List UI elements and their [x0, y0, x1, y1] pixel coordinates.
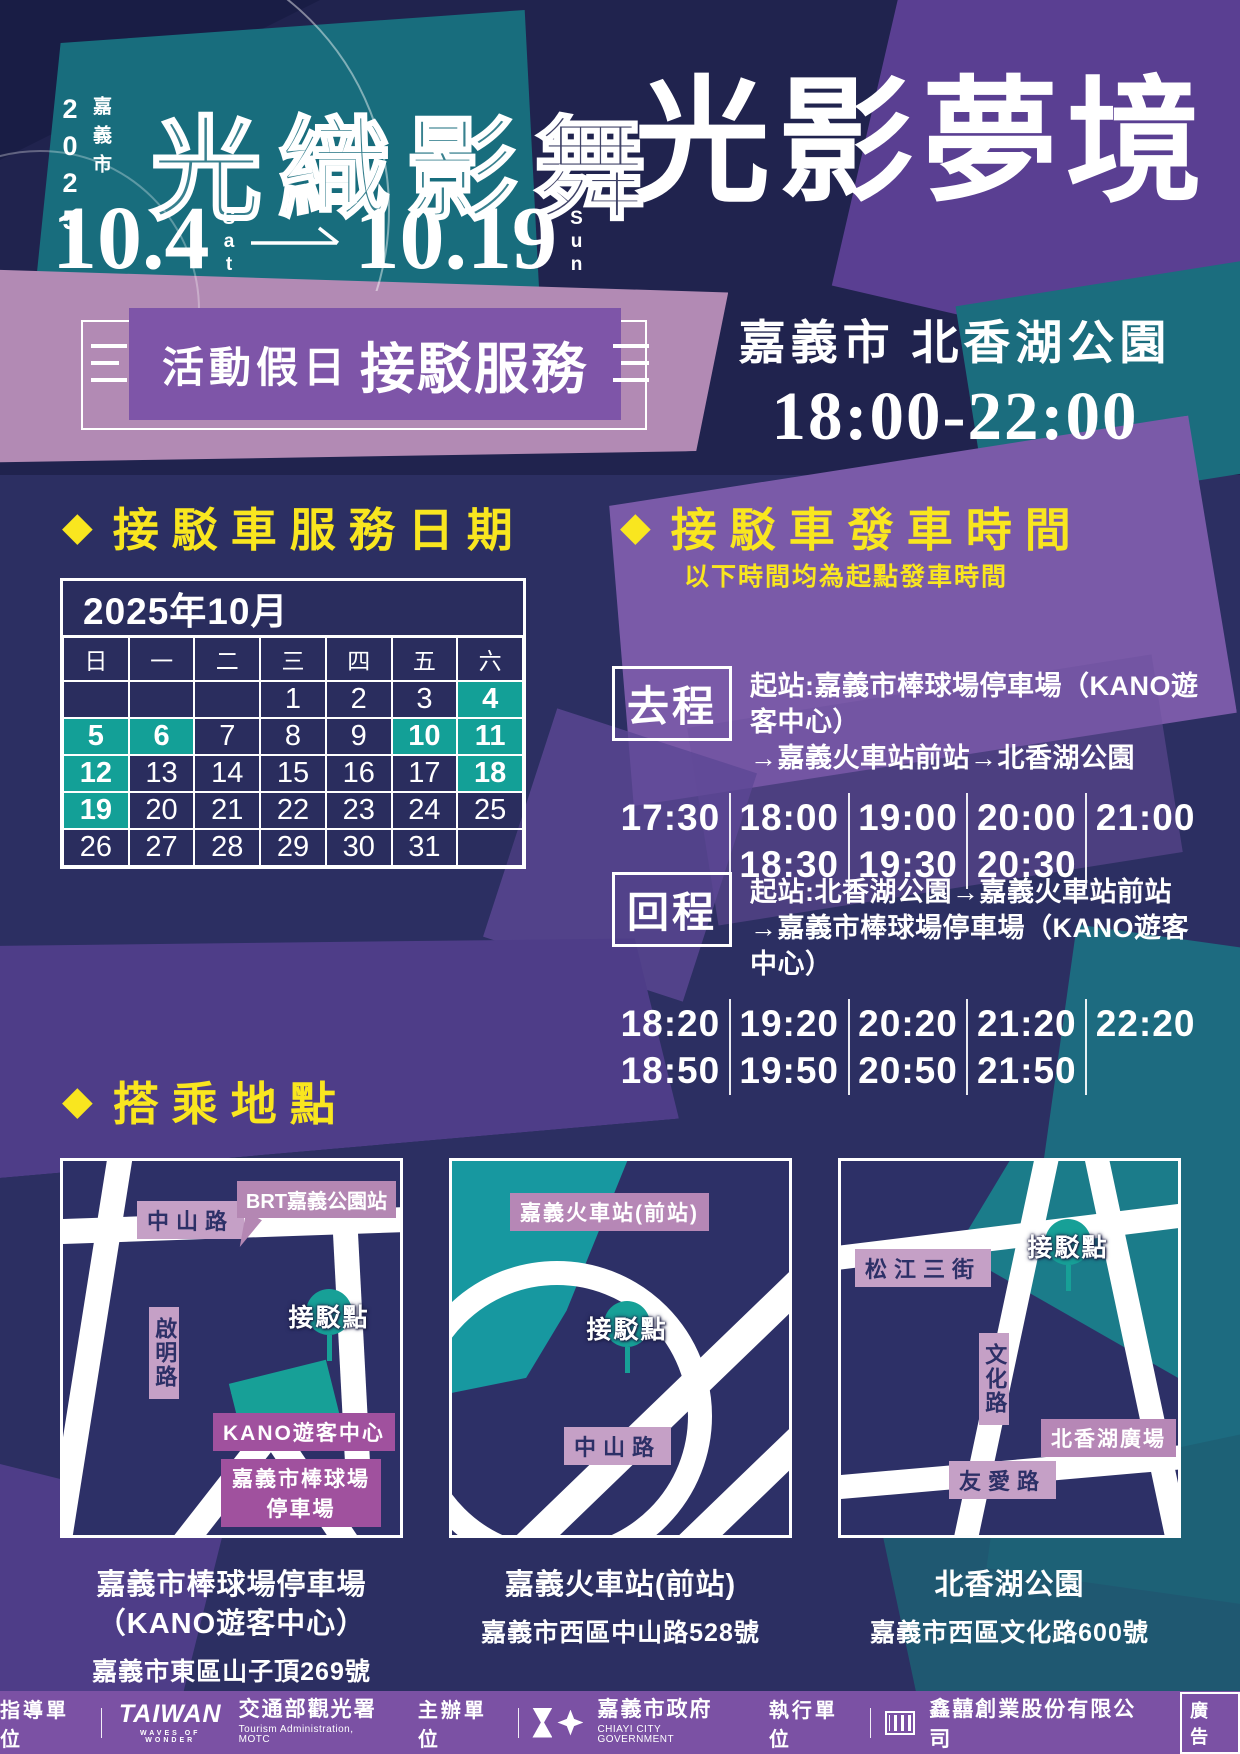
pin-stem	[327, 1335, 332, 1361]
time-slot: 17:30	[621, 795, 721, 840]
time-slot: 18:50	[621, 1048, 721, 1093]
outbound-trip: 去程 起站:嘉義市棒球場停車場（KANO遊客中心） →嘉義火車站前站→北香湖公園…	[612, 666, 1214, 889]
map-card-stadium: 中山路 BRT嘉義公園站 啟明路 接駁點 KANO遊客中心 嘉義市棒球場 停車場…	[60, 1158, 403, 1688]
banner-label-bold: 接駁服務	[360, 324, 588, 404]
maps-row: 中山路 BRT嘉義公園站 啟明路 接駁點 KANO遊客中心 嘉義市棒球場 停車場…	[60, 1158, 1182, 1688]
calendar-day: 31	[392, 829, 458, 866]
shuttle-pin: 接駁點	[1041, 1219, 1095, 1291]
footer-divider	[870, 1708, 871, 1738]
map-station: 嘉義火車站(前站) 接駁點 中山路	[449, 1158, 792, 1538]
calendar-empty-cell	[63, 681, 129, 718]
road-label-youai: 友愛路	[949, 1461, 1056, 1499]
calendar-day: 25	[457, 792, 523, 829]
chiayi-government-org: 嘉義市政府 CHIAYI CITY GOVERNMENT	[597, 1699, 730, 1745]
pin-label: 接駁點	[1027, 1228, 1108, 1264]
footer-bar: 指導單位 TAIWAN WAVES OF WONDER 交通部觀光署 Touri…	[0, 1691, 1240, 1754]
time-column: 22:20	[1085, 999, 1204, 1095]
time-slot: 19:50	[739, 1048, 839, 1093]
road-label-zhongshan: 中山路	[137, 1201, 244, 1239]
date-start-day: Sat	[220, 208, 239, 281]
calendar-weekday: 六	[457, 637, 523, 681]
taiwan-tagline: WAVES OF WONDER	[116, 1730, 225, 1744]
diamond-icon: ◆	[62, 507, 93, 547]
ad-badge: 廣告	[1180, 1692, 1240, 1754]
calendar-day: 18	[457, 755, 523, 792]
map-stadium: 中山路 BRT嘉義公園站 啟明路 接駁點 KANO遊客中心 嘉義市棒球場 停車場	[60, 1158, 403, 1538]
locations-section-heading: ◆ 搭乘地點	[62, 1068, 349, 1134]
road-label-zhongshan: 中山路	[564, 1427, 671, 1465]
road	[60, 1158, 134, 1538]
time-slot: 20:20	[858, 1001, 958, 1046]
map-park: 松江三街 接駁點 文化路 北香湖廣場 友愛路	[838, 1158, 1181, 1538]
calendar-day: 29	[260, 829, 326, 866]
calendar-day: 10	[392, 718, 458, 755]
diamond-icon: ◆	[62, 1081, 93, 1121]
map-caption-station: 嘉義火車站(前站) 嘉義市西區中山路528號	[449, 1566, 792, 1649]
calendar-day: 14	[194, 755, 260, 792]
calendar-day: 19	[63, 792, 129, 829]
taiwan-wordmark: TAIWAN	[116, 1702, 225, 1727]
kano-center-label: KANO遊客中心	[213, 1413, 395, 1451]
caption-address: 嘉義市東區山子頂269號	[60, 1652, 403, 1688]
return-route: 起站:北香湖公園→嘉義火車站前站 →嘉義市棒球場停車場（KANO遊客中心）	[750, 872, 1214, 983]
calendar-weekday: 日	[63, 637, 129, 681]
calendar-weekday: 三	[260, 637, 326, 681]
calendar-day: 20	[129, 792, 195, 829]
station-label: 嘉義火車站(前站)	[510, 1193, 709, 1231]
time-column: 20:2020:50	[848, 999, 967, 1095]
return-route-line1: 起站:北香湖公園→嘉義火車站前站	[750, 874, 1214, 910]
calendar-month-title: 2025年10月	[63, 581, 523, 637]
times-heading-text: 接駁車發車時間	[671, 494, 1084, 560]
shuttle-banner: 活動假日 接駁服務	[75, 300, 665, 436]
time-slot: 18:00	[739, 795, 839, 840]
banner-label-regular: 活動假日	[162, 334, 350, 395]
venue-location: 嘉義市 北香湖公園	[690, 304, 1220, 373]
time-column: 19:2019:50	[729, 999, 848, 1095]
time-slot: 21:50	[977, 1048, 1077, 1093]
taiwan-logo: TAIWAN WAVES OF WONDER	[116, 1702, 225, 1744]
time-column: 21:2021:50	[966, 999, 1085, 1095]
calendar-day: 8	[260, 718, 326, 755]
calendar-empty-cell	[457, 829, 523, 866]
road-label-wenhua: 文化路	[979, 1333, 1009, 1425]
time-slot: 22:20	[1096, 1001, 1196, 1046]
map-card-station: 嘉義火車站(前站) 接駁點 中山路 嘉義火車站(前站) 嘉義市西區中山路528號	[449, 1158, 792, 1688]
shuttle-banner-box: 活動假日 接駁服務	[129, 308, 621, 420]
plaza-label: 北香湖廣場	[1041, 1419, 1176, 1457]
calendar-day: 5	[63, 718, 129, 755]
calendar-day: 7	[194, 718, 260, 755]
caption-address: 嘉義市西區文化路600號	[838, 1613, 1181, 1649]
map-caption-stadium: 嘉義市棒球場停車場 （KANO遊客中心） 嘉義市東區山子頂269號	[60, 1566, 403, 1688]
caption-title: 嘉義市棒球場停車場	[60, 1566, 403, 1605]
calendar-day: 28	[194, 829, 260, 866]
calendar: 2025年10月 日一二三四五六123456789101112131415161…	[60, 578, 526, 869]
times-section-heading: ◆ 接駁車發車時間	[620, 494, 1084, 560]
return-route-line2: →嘉義市棒球場停車場（KANO遊客中心）	[750, 910, 1214, 982]
calendar-day: 9	[326, 718, 392, 755]
calendar-weekday: 一	[129, 637, 195, 681]
pin-stem	[1066, 1265, 1071, 1291]
map-card-park: 松江三街 接駁點 文化路 北香湖廣場 友愛路 北香湖公園 嘉義市西區文化路600…	[838, 1158, 1181, 1688]
map-caption-park: 北香湖公園 嘉義市西區文化路600號	[838, 1566, 1181, 1649]
road-label-songjiang: 松江三街	[855, 1249, 991, 1287]
outbound-route: 起站:嘉義市棒球場停車場（KANO遊客中心） →嘉義火車站前站→北香湖公園	[750, 666, 1214, 777]
main-title: 光影夢境	[634, 70, 1240, 220]
caption-address: 嘉義市西區中山路528號	[449, 1613, 792, 1649]
time-slot: 19:00	[858, 795, 958, 840]
time-slot: 19:20	[739, 1001, 839, 1046]
road-label-qiming: 啟明路	[149, 1307, 179, 1399]
tourism-admin-org: 交通部觀光署 Tourism Administration, MOTC	[239, 1699, 380, 1745]
org-subname: Tourism Administration, MOTC	[239, 1725, 380, 1746]
calendar-weekday: 二	[194, 637, 260, 681]
locations-heading-text: 搭乘地點	[113, 1068, 349, 1134]
footer-group-guidance: 指導單位 TAIWAN WAVES OF WONDER 交通部觀光署 Touri…	[0, 1694, 380, 1752]
return-label: 回程	[612, 872, 732, 947]
time-slot: 21:00	[1096, 795, 1196, 840]
caption-title: 嘉義火車站(前站)	[449, 1566, 792, 1605]
poster-root: 2025 嘉義市 光織影舞 10.4 Sat 10.19 Sun 光影夢境 活動…	[0, 0, 1240, 1754]
arrow-right-icon	[249, 224, 345, 281]
org-name: 鑫囍創業股份有限公司	[929, 1693, 1146, 1753]
time-slot: 18:20	[621, 1001, 721, 1046]
org-subname: CHIAYI CITY GOVERNMENT	[597, 1725, 730, 1746]
calendar-day: 21	[194, 792, 260, 829]
calendar-day: 17	[392, 755, 458, 792]
date-end: 10.19	[355, 198, 558, 281]
calendar-day: 23	[326, 792, 392, 829]
calendar-empty-cell	[194, 681, 260, 718]
calendar-day: 6	[129, 718, 195, 755]
calendar-grid: 日一二三四五六123456789101112131415161718192021…	[63, 637, 523, 866]
footer-divider	[518, 1708, 519, 1738]
org-name: 嘉義市政府	[597, 1699, 730, 1721]
chiayi-logo-flower	[557, 1710, 583, 1736]
caption-title: （KANO遊客中心）	[60, 1605, 403, 1644]
diamond-icon: ◆	[620, 507, 651, 547]
date-range: 10.4 Sat 10.19 Sun	[52, 198, 586, 281]
time-slot: 20:00	[977, 795, 1077, 840]
pin-stem	[625, 1347, 630, 1373]
outbound-label: 去程	[612, 666, 732, 741]
outbound-route-line1: 起站:嘉義市棒球場停車場（KANO遊客中心）	[750, 668, 1214, 740]
outbound-route-line2: →嘉義火車站前站→北香湖公園	[750, 740, 1214, 776]
calendar-day: 1	[260, 681, 326, 718]
pin-label: 接駁點	[288, 1298, 369, 1334]
time-slot: 20:50	[858, 1048, 958, 1093]
venue-hours: 18:00-22:00	[690, 377, 1220, 456]
footer-divider	[101, 1708, 102, 1738]
calendar-weekday: 四	[326, 637, 392, 681]
calendar-day: 30	[326, 829, 392, 866]
calendar-day: 11	[457, 718, 523, 755]
brt-station-callout: BRT嘉義公園站	[237, 1181, 396, 1218]
calendar-day: 22	[260, 792, 326, 829]
time-slot: 21:20	[977, 1001, 1077, 1046]
org-name: 交通部觀光署	[239, 1699, 380, 1721]
time-column: 18:2018:50	[612, 999, 729, 1095]
calendar-day: 12	[63, 755, 129, 792]
times-subtitle: 以下時間均為起點發車時間	[684, 557, 1008, 593]
calendar-day: 24	[392, 792, 458, 829]
stadium-parking-label: 嘉義市棒球場 停車場	[221, 1459, 381, 1527]
calendar-day: 26	[63, 829, 129, 866]
calendar-empty-cell	[129, 681, 195, 718]
footer-role: 執行單位	[769, 1694, 856, 1752]
caption-title: 北香湖公園	[838, 1566, 1181, 1605]
calendar-day: 2	[326, 681, 392, 718]
venue-block: 嘉義市 北香湖公園 18:00-22:00	[690, 304, 1220, 456]
footer-role: 指導單位	[0, 1694, 87, 1752]
calendar-day: 3	[392, 681, 458, 718]
date-end-day: Sun	[567, 208, 586, 281]
calendar-day: 13	[129, 755, 195, 792]
footer-group-organizer: 主辦單位 嘉義市政府 CHIAYI CITY GOVERNMENT	[418, 1694, 731, 1752]
calendar-day: 4	[457, 681, 523, 718]
calendar-heading-text: 接駁車服務日期	[113, 494, 526, 560]
calendar-day: 16	[326, 755, 392, 792]
ribbon-fold-lines-right	[613, 344, 649, 382]
ribbon-fold-lines-left	[91, 344, 127, 382]
return-trip: 回程 起站:北香湖公園→嘉義火車站前站 →嘉義市棒球場停車場（KANO遊客中心）…	[612, 872, 1214, 1095]
chiayi-logo-mark	[532, 1708, 552, 1738]
shuttle-pin: 接駁點	[600, 1301, 654, 1373]
return-time-grid: 18:2018:5019:2019:5020:2020:5021:2021:50…	[612, 999, 1204, 1095]
xinxi-logo	[885, 1711, 916, 1735]
chiayi-government-logo	[532, 1708, 583, 1738]
footer-role: 主辦單位	[418, 1694, 504, 1752]
shuttle-pin: 接駁點	[302, 1289, 356, 1361]
pin-label: 接駁點	[586, 1310, 667, 1346]
calendar-weekday: 五	[392, 637, 458, 681]
calendar-section-heading: ◆ 接駁車服務日期	[62, 494, 526, 560]
date-start: 10.4	[52, 198, 210, 281]
calendar-day: 15	[260, 755, 326, 792]
calendar-day: 27	[129, 829, 195, 866]
footer-group-executor: 執行單位 鑫囍創業股份有限公司	[769, 1693, 1146, 1753]
